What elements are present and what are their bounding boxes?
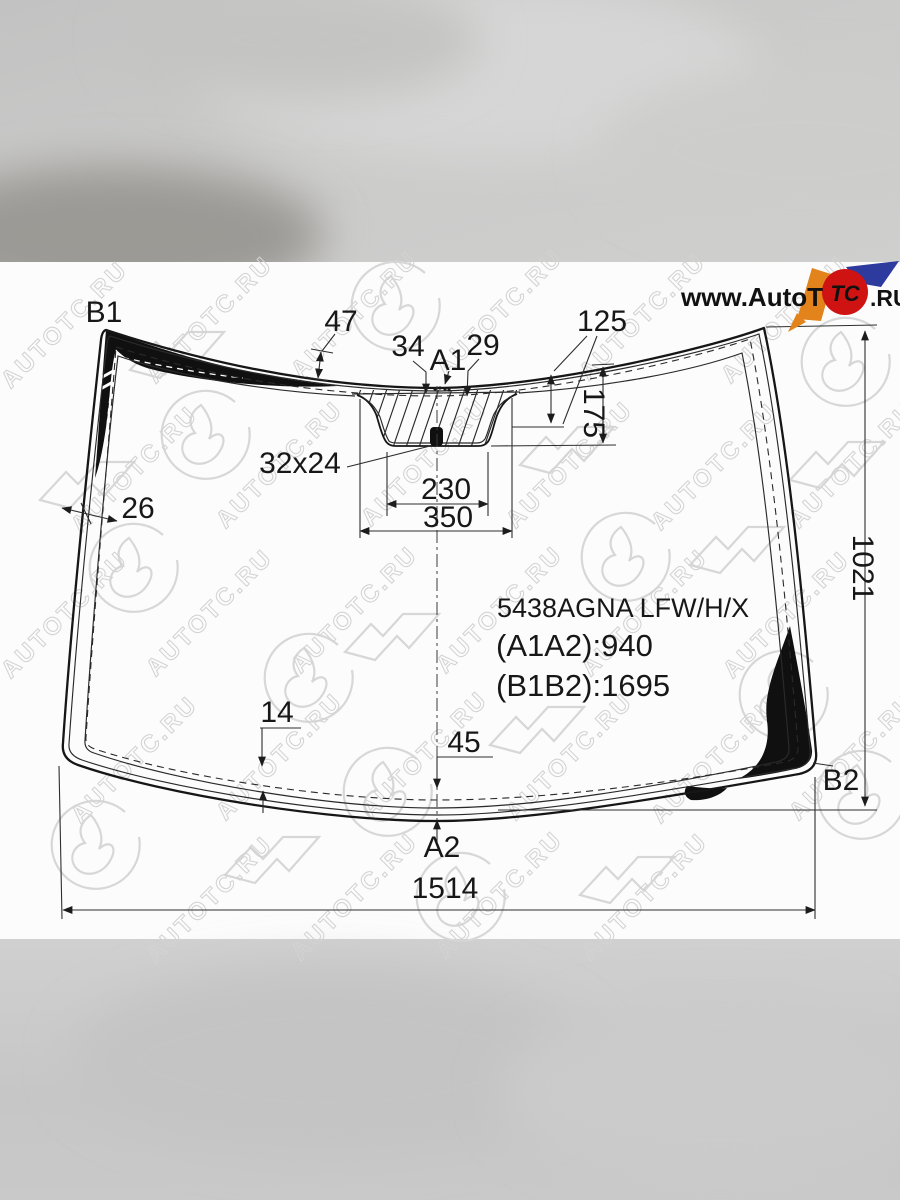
dim-width-label: 1514 [412,872,479,905]
part-code: 5438AGNA LFW/H/X [497,593,749,623]
dim-mount-outer-width-label: 350 [423,501,473,534]
dim-sensor-size-label: 32x24 [259,447,341,480]
logo-suffix-text: .RU [870,285,900,311]
part-length-a1a2: (A1A2):940 [496,628,653,663]
part-length-b1b2: (B1B2):1695 [496,668,670,703]
dim-height-label: 1021 [846,535,879,602]
windshield-diagram-page: AUTOTC.RU AUTOTC.RU AUTOTC.RU AUTOTC.RU … [0,0,900,1200]
top-grey-band [0,0,900,305]
point-a2-label: A2 [424,831,461,864]
dim-offset-right-label: 29 [466,329,499,362]
dim-to-mount-bottom-label: 175 [577,388,610,438]
dim-left-band-label: 26 [121,492,154,525]
dim-bottom-center-label: 45 [447,726,480,759]
dim-top-band-label: 47 [324,305,357,338]
logo-prefix-text: www.AutoT [680,282,823,312]
windshield-technical-drawing: AUTOTC.RU AUTOTC.RU AUTOTC.RU AUTOTC.RU … [0,0,900,1200]
point-a1-label: A1 [430,344,467,377]
point-b1-label: B1 [86,296,123,329]
logo-circle-text: TC [830,281,860,306]
dim-to-sensor-label: 125 [577,305,627,338]
dim-offset-left-label: 34 [391,330,424,363]
bottom-grey-band [0,939,900,1200]
point-b2-label: B2 [823,764,860,797]
dim-bottom-side-label: 14 [260,696,293,729]
